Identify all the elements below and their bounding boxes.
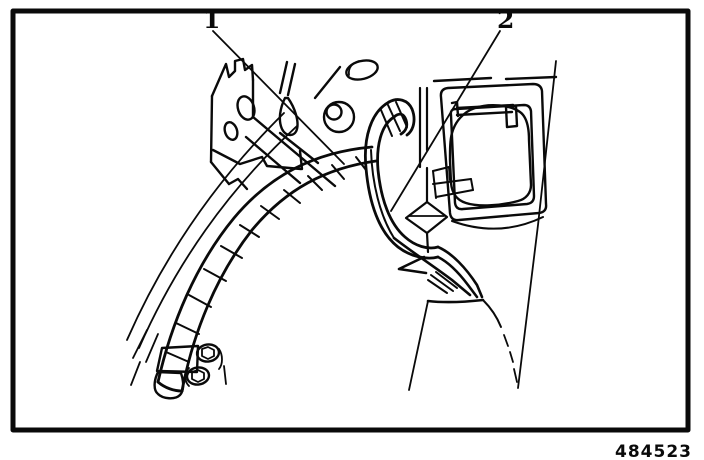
- callout-1-label: 1: [203, 5, 220, 34]
- figure-number: 484523: [615, 442, 692, 460]
- door-latch-panel: [433, 77, 556, 229]
- figure-border-frame: [13, 11, 688, 430]
- grommet-inner-hole: [327, 105, 342, 120]
- strip-pointed-end: [394, 238, 501, 327]
- bracket-hole-lower: [223, 121, 240, 142]
- hex-bolt-upper: [196, 343, 222, 369]
- door-edge-lines: [409, 61, 556, 390]
- figure-panel: 1 2 484523: [0, 0, 704, 460]
- callout-2-label: 2: [497, 5, 514, 34]
- sealing-strip-item-1: [158, 147, 376, 391]
- oval-hole: [344, 57, 379, 82]
- technical-illustration: 1 2 484523: [0, 0, 704, 460]
- bracket-tab: [280, 98, 298, 135]
- bracket-panel: [211, 59, 340, 189]
- latch-access-hole: [450, 105, 531, 205]
